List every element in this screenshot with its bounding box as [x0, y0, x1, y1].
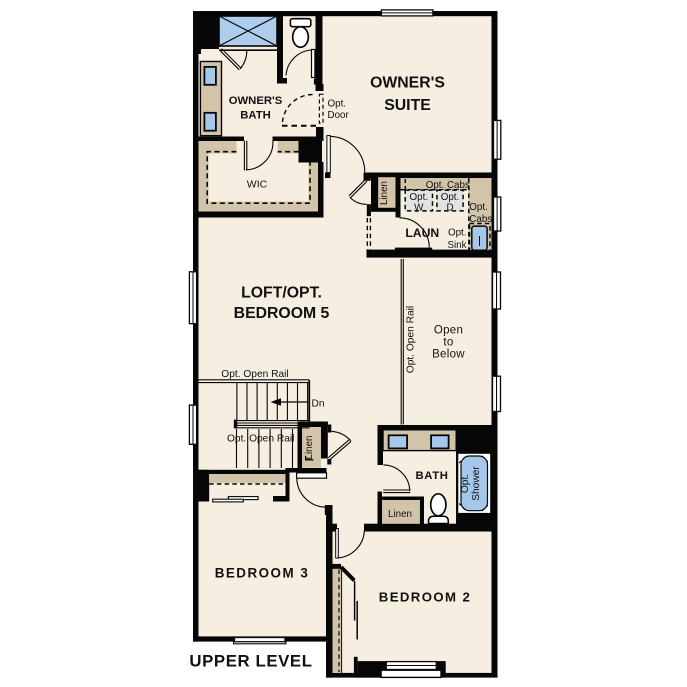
svg-text:Linen: Linen	[388, 509, 412, 520]
svg-text:Sink: Sink	[447, 240, 466, 251]
svg-text:W: W	[414, 203, 424, 214]
svg-text:WIC: WIC	[247, 179, 268, 191]
svg-text:Linen: Linen	[304, 436, 315, 460]
svg-text:OWNER'S: OWNER'S	[229, 95, 283, 107]
svg-text:BEDROOM 3: BEDROOM 3	[215, 565, 310, 580]
svg-text:UPPER LEVEL: UPPER LEVEL	[189, 651, 312, 670]
svg-text:BATH: BATH	[240, 110, 271, 122]
svg-text:to: to	[443, 337, 453, 349]
svg-text:Opt.: Opt.	[448, 228, 467, 239]
svg-text:Opt.: Opt.	[469, 202, 488, 213]
svg-text:D: D	[446, 203, 453, 214]
svg-text:BEDROOM 2: BEDROOM 2	[379, 590, 471, 605]
svg-text:BEDROOM 5: BEDROOM 5	[234, 305, 330, 322]
svg-text:Shower: Shower	[471, 466, 482, 501]
svg-text:OWNER'S: OWNER'S	[370, 75, 445, 92]
svg-text:Opt. Open Rail: Opt. Open Rail	[221, 369, 288, 380]
svg-text:BATH: BATH	[416, 470, 449, 482]
svg-text:SUITE: SUITE	[384, 97, 431, 114]
svg-text:Opt.: Opt.	[410, 192, 429, 203]
svg-text:LOFT/OPT.: LOFT/OPT.	[241, 285, 322, 302]
svg-text:Linen: Linen	[379, 181, 390, 205]
svg-text:Dn: Dn	[312, 398, 325, 409]
svg-text:Opt.: Opt.	[328, 98, 347, 109]
svg-text:LAUN: LAUN	[405, 226, 439, 240]
svg-text:Opt.: Opt.	[441, 192, 460, 203]
svg-text:Door: Door	[328, 110, 350, 121]
svg-text:Opt. Open Rail: Opt. Open Rail	[227, 433, 294, 444]
svg-text:Cabs: Cabs	[469, 214, 492, 225]
svg-text:Opt. Cabs: Opt. Cabs	[426, 180, 470, 191]
svg-text:Opt. Open Rail: Opt. Open Rail	[405, 306, 416, 373]
svg-text:Open: Open	[434, 325, 463, 337]
svg-text:Opt.: Opt.	[460, 474, 471, 493]
svg-text:Below: Below	[432, 349, 465, 361]
